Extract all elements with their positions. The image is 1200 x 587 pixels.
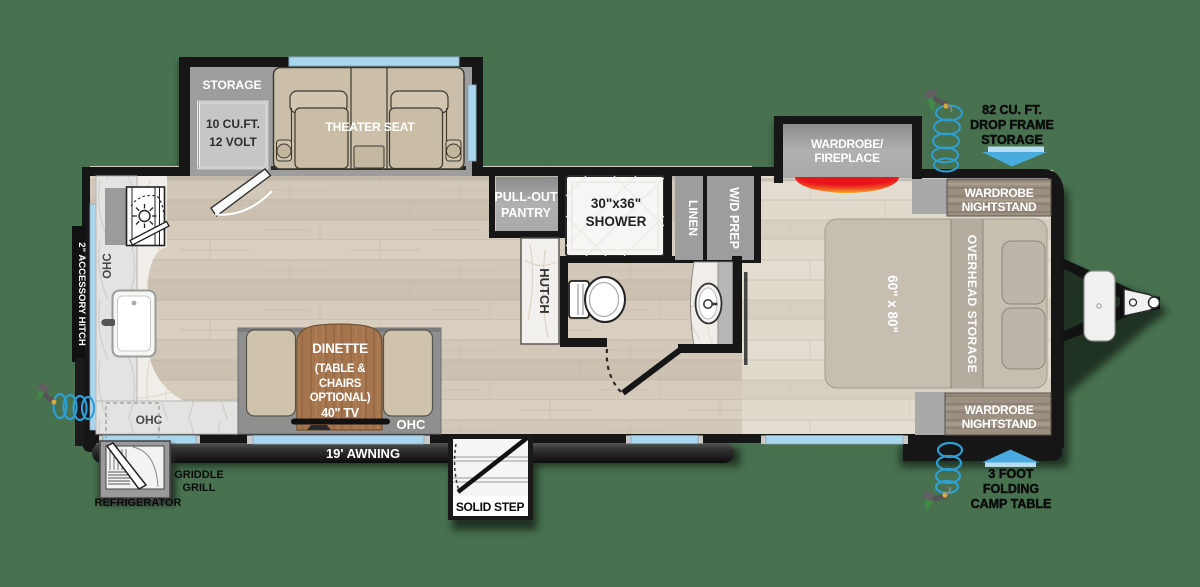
svg-text:SOLID STEP: SOLID STEP bbox=[456, 500, 525, 514]
svg-text:OHC: OHC bbox=[102, 253, 114, 279]
svg-text:SHOWER: SHOWER bbox=[586, 214, 647, 229]
svg-text:WARDROBE: WARDROBE bbox=[965, 186, 1034, 200]
svg-text:FIREPLACE: FIREPLACE bbox=[814, 151, 880, 165]
svg-text:LINEN: LINEN bbox=[686, 200, 700, 236]
svg-text:REFRIGERATOR: REFRIGERATOR bbox=[95, 497, 182, 509]
svg-text:OPTIONAL): OPTIONAL) bbox=[310, 392, 371, 404]
svg-text:PANTRY: PANTRY bbox=[501, 206, 552, 220]
svg-text:40" TV: 40" TV bbox=[321, 406, 359, 420]
svg-text:2" ACCESSORY HITCH: 2" ACCESSORY HITCH bbox=[76, 242, 87, 346]
svg-text:NIGHTSTAND: NIGHTSTAND bbox=[962, 200, 1037, 214]
svg-text:GRIDDLE: GRIDDLE bbox=[174, 469, 224, 481]
svg-text:STORAGE: STORAGE bbox=[202, 78, 261, 92]
svg-text:STORAGE: STORAGE bbox=[981, 133, 1043, 147]
svg-text:DROP FRAME: DROP FRAME bbox=[970, 118, 1054, 132]
svg-text:60" x 80": 60" x 80" bbox=[885, 275, 900, 333]
svg-text:FOLDING: FOLDING bbox=[983, 482, 1039, 496]
svg-text:OHC: OHC bbox=[397, 417, 427, 432]
svg-text:GRILL: GRILL bbox=[183, 482, 216, 494]
svg-text:30"x36": 30"x36" bbox=[591, 196, 641, 211]
svg-text:WARDROBE: WARDROBE bbox=[965, 403, 1034, 417]
svg-text:PULL-OUT: PULL-OUT bbox=[494, 190, 558, 204]
svg-text:3 FOOT: 3 FOOT bbox=[988, 467, 1034, 481]
svg-text:19' AWNING: 19' AWNING bbox=[326, 446, 400, 461]
svg-text:82 CU. FT.: 82 CU. FT. bbox=[982, 103, 1042, 117]
svg-text:W/D PREP: W/D PREP bbox=[727, 187, 741, 249]
svg-text:HUTCH: HUTCH bbox=[537, 268, 552, 314]
svg-text:12 VOLT: 12 VOLT bbox=[209, 135, 257, 149]
svg-text:CHAIRS: CHAIRS bbox=[319, 378, 362, 390]
svg-text:OVERHEAD STORAGE: OVERHEAD STORAGE bbox=[965, 235, 979, 373]
svg-text:THEATER SEAT: THEATER SEAT bbox=[325, 120, 415, 134]
svg-text:DINETTE: DINETTE bbox=[312, 341, 368, 356]
svg-text:NIGHTSTAND: NIGHTSTAND bbox=[962, 417, 1037, 431]
svg-text:CAMP TABLE: CAMP TABLE bbox=[971, 497, 1052, 511]
svg-text:10 CU.FT.: 10 CU.FT. bbox=[206, 117, 260, 131]
svg-text:WARDROBE/: WARDROBE/ bbox=[811, 137, 884, 151]
svg-text:(TABLE &: (TABLE & bbox=[315, 363, 365, 375]
